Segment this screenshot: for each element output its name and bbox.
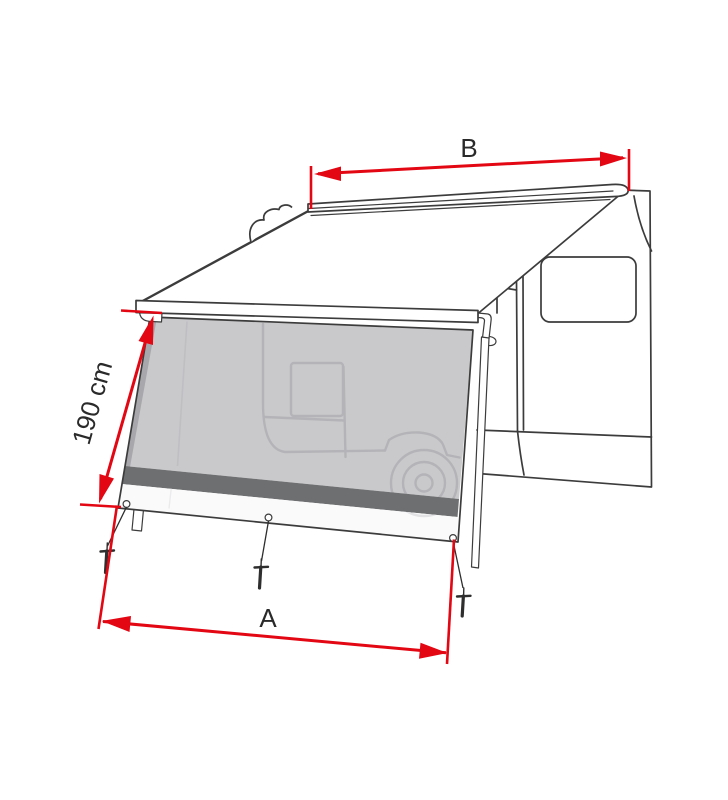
dimension-b-label: B: [460, 133, 477, 163]
dimension-a-label: A: [259, 603, 277, 633]
ground-peg-middle: [255, 559, 269, 588]
dimension-height-label: 190 cm: [66, 358, 118, 448]
grommet-middle: [265, 514, 272, 521]
dimension-height-arrowhead-bottom: [99, 474, 114, 504]
dimension-a-extension-left: [99, 506, 118, 630]
awning-dimension-diagram: B: [0, 0, 728, 800]
dimension-b-arrowhead-right: [600, 152, 627, 167]
support-leg-right: [472, 337, 490, 568]
diagram-canvas: B: [0, 0, 728, 800]
van-door-edge-line-1: [517, 281, 518, 431]
van-window: [541, 257, 636, 322]
van-door-bottom-curve: [518, 431, 525, 475]
guy-line-middle: [262, 521, 269, 561]
dimension-a-arrowhead-left: [102, 616, 132, 632]
dimension-height-tick-bottom: [80, 505, 121, 508]
grommet-left: [123, 501, 130, 508]
van-body-crease-line: [477, 430, 652, 437]
ground-peg-right: [457, 588, 471, 616]
support-leg-left: [132, 509, 144, 531]
van-door-edge-line-2: [523, 275, 524, 430]
dimension-b-arrowhead-left: [314, 167, 341, 182]
dimension-a-arrowhead-right: [419, 643, 448, 659]
van-a-pillar-curve: [634, 196, 652, 251]
dimension-a-extension-right: [447, 540, 454, 665]
side-panel: [118, 317, 473, 542]
